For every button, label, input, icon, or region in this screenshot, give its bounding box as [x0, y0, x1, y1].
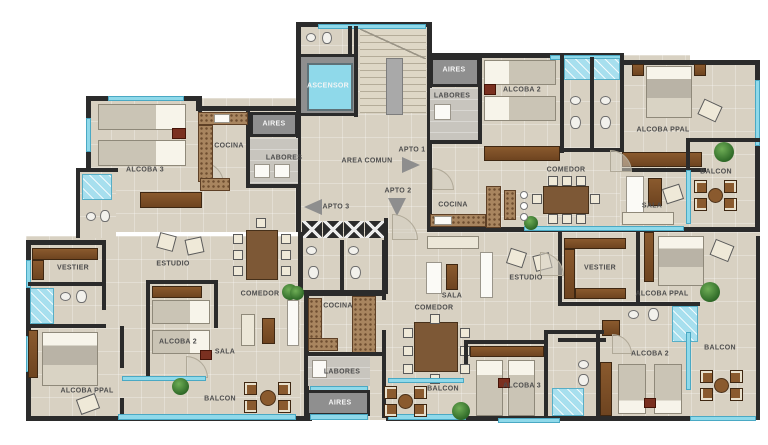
stair-direction-line — [360, 29, 426, 59]
single-bed — [484, 60, 556, 85]
window — [310, 414, 368, 420]
patio-chair — [384, 386, 397, 399]
patio-chair — [414, 386, 427, 399]
kitchen-island — [504, 190, 516, 220]
wall — [298, 232, 303, 292]
closet — [470, 346, 544, 357]
wall — [348, 26, 352, 56]
single-bed — [152, 300, 210, 324]
patio-chair — [244, 400, 257, 413]
closet — [28, 330, 38, 378]
room-label-alcoba2-bl: ALCOBA 2 — [159, 339, 197, 346]
dining-chair — [460, 364, 470, 374]
wall — [354, 26, 358, 117]
sofa — [427, 236, 479, 249]
patio-chair — [700, 388, 713, 401]
stove-icon — [434, 216, 452, 225]
dining-table — [543, 186, 589, 214]
double-bed — [42, 332, 98, 386]
stair-landing — [386, 58, 403, 115]
room-label-aires-tr: AIRES — [443, 67, 466, 74]
room-label-balcon-tr: BALCON — [700, 169, 732, 176]
window — [524, 226, 684, 231]
room-label-alcoba3-tl: ALCOBA 3 — [126, 167, 164, 174]
dining-chair — [430, 314, 440, 324]
toilet-icon — [350, 266, 361, 279]
dining-chair — [548, 214, 558, 224]
wall — [340, 240, 344, 290]
skylight-box — [302, 221, 322, 238]
bar-stool — [520, 191, 528, 199]
dining-chair — [233, 250, 243, 260]
apto-2-arrow — [388, 198, 406, 216]
floor-plan: ALCOBA 3 COCINA AIRES LABORES ASCENSOR A… — [0, 0, 768, 445]
side-table — [446, 264, 458, 290]
patio-chair — [278, 400, 291, 413]
balcony-rail — [690, 416, 756, 421]
kitchen-island — [200, 178, 230, 191]
toilet-icon — [308, 266, 319, 279]
single-bed — [98, 140, 186, 166]
dining-chair — [233, 234, 243, 244]
apto-1-arrow — [402, 157, 420, 173]
toilet-icon — [322, 32, 332, 44]
dining-chair — [532, 194, 542, 204]
wall — [464, 340, 468, 364]
wall — [756, 236, 760, 420]
patio-table — [714, 378, 729, 393]
skylight-box — [344, 221, 364, 238]
closet — [600, 362, 612, 416]
window — [755, 80, 760, 146]
toilet-icon — [578, 374, 589, 386]
patio-chair — [724, 198, 737, 211]
plant-icon — [290, 286, 304, 300]
window — [86, 118, 91, 152]
closet — [140, 192, 202, 208]
closet — [564, 238, 626, 249]
kitchen-counter — [486, 186, 501, 228]
wall — [430, 140, 482, 144]
plant-icon — [172, 378, 189, 395]
patio-chair — [244, 382, 257, 395]
balcony-window — [388, 378, 464, 383]
wall — [382, 240, 386, 300]
wall — [622, 168, 706, 172]
room-label-vestier-br: VESTIER — [584, 265, 616, 272]
room-label-labores-tr: LABORES — [434, 93, 470, 100]
wall — [590, 57, 594, 148]
side-table — [262, 318, 275, 344]
patio-chair — [278, 382, 291, 395]
dining-table — [414, 322, 458, 372]
bar-stool — [520, 202, 528, 210]
room-label-area-comun: AREA COMUN — [342, 158, 393, 165]
patio-chair — [384, 404, 397, 417]
closet — [152, 286, 202, 298]
room-label-sala-br: SALA — [442, 293, 462, 300]
room-label-vestier-bl: VESTIER — [57, 265, 89, 272]
single-bed — [98, 104, 186, 130]
sofa — [622, 212, 674, 225]
room-label-alcoba3-br: ALCOBA 3 — [503, 383, 541, 390]
closet — [32, 260, 44, 280]
window — [108, 96, 184, 101]
balcony-rail — [118, 414, 296, 420]
patio-table — [260, 390, 276, 406]
closet — [484, 146, 560, 161]
dining-chair — [403, 346, 413, 356]
room-label-balcon-r: BALCON — [704, 345, 736, 352]
dining-chair — [281, 250, 291, 260]
shower — [30, 288, 54, 324]
double-bed — [646, 66, 692, 118]
dining-chair — [590, 194, 600, 204]
balcony-window — [686, 170, 691, 224]
toilet-icon — [570, 116, 581, 129]
sink-icon — [628, 310, 639, 319]
dining-table — [246, 230, 278, 280]
patio-chair — [730, 388, 743, 401]
dining-chair — [562, 214, 572, 224]
sink-icon — [578, 360, 589, 369]
room-label-alcoba-ppal-tr: ALCOBA PPAL — [636, 127, 689, 134]
dining-chair — [281, 234, 291, 244]
shelf — [287, 300, 299, 346]
room-label-sala-tr: SALA — [642, 203, 662, 210]
wall — [478, 55, 482, 143]
dining-chair — [576, 214, 586, 224]
wall — [28, 282, 104, 286]
toilet-icon — [648, 308, 659, 321]
skylight-box — [323, 221, 343, 238]
room-label-cocina-br: COCINA — [323, 303, 352, 310]
room-label-balcon-bl: BALCON — [204, 396, 236, 403]
bar-stool — [520, 213, 528, 221]
plant-icon — [452, 402, 470, 420]
room-label-estudio-bl: ESTUDIO — [156, 261, 189, 268]
shower — [82, 174, 112, 200]
patio-chair — [414, 404, 427, 417]
room-label-cocina-tr: COCINA — [438, 202, 467, 209]
room-label-cocina-tl: COCINA — [214, 143, 243, 150]
wall — [214, 280, 218, 328]
toilet-icon — [600, 116, 611, 129]
vanity — [602, 320, 620, 336]
wall — [26, 240, 106, 245]
closet — [32, 248, 98, 260]
wall — [246, 184, 300, 188]
room-label-sala-bl: SALA — [215, 349, 235, 356]
apto-3-arrow — [304, 199, 322, 215]
sink-icon — [570, 96, 581, 105]
wall — [544, 330, 604, 334]
room-label-apto3: APTO 3 — [323, 204, 350, 211]
dining-chair — [562, 176, 572, 186]
wall — [464, 340, 548, 344]
patio-chair — [730, 370, 743, 383]
dining-chair — [403, 364, 413, 374]
dining-chair — [403, 328, 413, 338]
shower — [552, 388, 584, 416]
room-label-alcoba-ppal-bl: ALCOBA PPAL — [60, 388, 113, 395]
wall — [28, 324, 106, 328]
sink-icon — [60, 292, 71, 301]
balcony-window — [122, 376, 206, 381]
stove-icon — [214, 114, 230, 123]
dining-chair — [460, 328, 470, 338]
toilet-icon — [100, 210, 110, 222]
room-label-alcoba-ppal-br: ALCOBA PPAL — [635, 291, 688, 298]
washer-icon — [434, 104, 451, 120]
single-bed — [618, 364, 646, 414]
room-label-balcon-b: BALCON — [427, 386, 459, 393]
shower — [672, 306, 698, 342]
wall — [146, 280, 218, 284]
room-label-estudio-br: ESTUDIO — [509, 275, 542, 282]
dining-chair — [548, 176, 558, 186]
wall — [686, 138, 690, 172]
sink-icon — [86, 212, 96, 221]
dining-chair — [281, 266, 291, 276]
room-label-apto1: APTO 1 — [399, 147, 426, 154]
headboard — [694, 64, 706, 76]
wall — [620, 53, 624, 152]
patio-chair — [694, 180, 707, 193]
room-label-apto2: APTO 2 — [385, 188, 412, 195]
nightstand — [644, 398, 656, 408]
wall — [146, 280, 150, 376]
room-label-labores-c: LABORES — [324, 369, 360, 376]
wall — [102, 240, 106, 310]
kitchen-counter — [198, 125, 213, 182]
patio-chair — [724, 180, 737, 193]
skylight-box — [365, 221, 385, 238]
plant-icon — [700, 282, 720, 302]
wall — [76, 168, 118, 172]
room-label-comedor-bl: COMEDOR — [241, 291, 280, 298]
single-bed — [654, 364, 682, 414]
closet — [644, 232, 654, 282]
balcony-window — [686, 332, 691, 390]
sink-icon — [600, 96, 611, 105]
room-label-comedor-br: COMEDOR — [415, 305, 454, 312]
wall — [76, 168, 80, 238]
sink-icon — [306, 246, 317, 255]
kitchen-island — [352, 296, 376, 354]
wall — [544, 330, 548, 418]
toilet-icon — [76, 290, 87, 303]
patio-chair — [694, 198, 707, 211]
washer-icon — [274, 164, 290, 178]
dining-chair — [576, 176, 586, 186]
nightstand — [484, 84, 496, 95]
plant-icon — [714, 142, 734, 162]
nightstand — [172, 128, 186, 139]
single-bed — [476, 360, 503, 416]
wall — [120, 326, 124, 368]
room-label-labores-tl: LABORES — [266, 155, 302, 162]
sofa — [241, 314, 255, 346]
room-label-comedor-tr: COMEDOR — [547, 167, 586, 174]
dining-chair — [256, 218, 266, 228]
closet — [622, 152, 702, 167]
sink-icon — [306, 33, 316, 42]
kitchen-counter — [308, 338, 338, 351]
nightstand — [200, 350, 212, 360]
room-label-aires-c: AIRES — [329, 400, 352, 407]
room-label-alcoba2-tr: ALCOBA 2 — [503, 87, 541, 94]
closet — [564, 249, 575, 299]
room-label-ascensor: ASCENSOR — [307, 83, 349, 90]
washer-icon — [254, 164, 270, 178]
dining-chair — [233, 266, 243, 276]
patio-table — [398, 394, 413, 409]
room-label-aires-tl: AIRES — [263, 121, 286, 128]
room-label-alcoba2-br: ALCOBA 2 — [631, 351, 669, 358]
double-bed — [658, 236, 704, 286]
patio-chair — [700, 370, 713, 383]
sink-icon — [348, 246, 359, 255]
single-bed — [484, 96, 556, 121]
headboard — [632, 64, 644, 76]
shelf — [480, 252, 493, 298]
patio-table — [708, 188, 723, 203]
window — [498, 418, 560, 423]
closet — [575, 288, 626, 299]
desk — [426, 262, 442, 294]
